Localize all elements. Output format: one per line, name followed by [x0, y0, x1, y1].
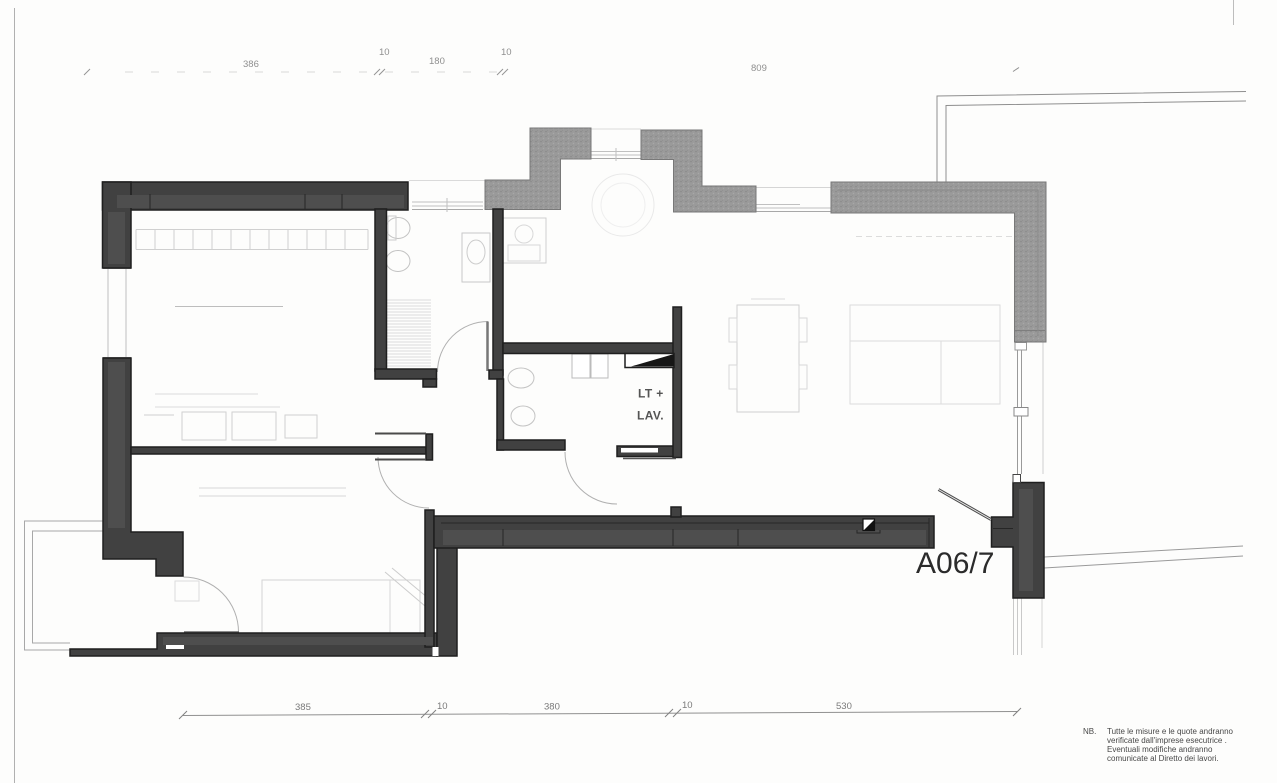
svg-text:LT +: LT +: [638, 387, 664, 401]
svg-text:385: 385: [295, 702, 311, 713]
svg-text:809: 809: [751, 63, 767, 74]
svg-text:verificate dall'imprese esecut: verificate dall'imprese esecutrice .: [1107, 736, 1227, 745]
svg-text:Tutte le misure e le quote and: Tutte le misure e le quote andranno: [1107, 727, 1234, 736]
svg-text:comunicate al Diretto dei lavo: comunicate al Diretto dei lavori.: [1107, 754, 1219, 763]
svg-text:380: 380: [544, 702, 560, 713]
svg-text:10: 10: [379, 47, 390, 58]
svg-text:NB.: NB.: [1083, 727, 1096, 736]
svg-text:10: 10: [501, 47, 512, 58]
svg-text:530: 530: [836, 701, 852, 712]
svg-text:Eventuali modifiche andranno: Eventuali modifiche andranno: [1107, 745, 1213, 754]
svg-text:10: 10: [682, 700, 693, 711]
svg-text:386: 386: [243, 59, 259, 70]
svg-text:180: 180: [429, 56, 445, 67]
svg-text:10: 10: [437, 701, 448, 712]
svg-text:LAV.: LAV.: [637, 409, 664, 423]
svg-text:A06/7: A06/7: [916, 547, 994, 580]
